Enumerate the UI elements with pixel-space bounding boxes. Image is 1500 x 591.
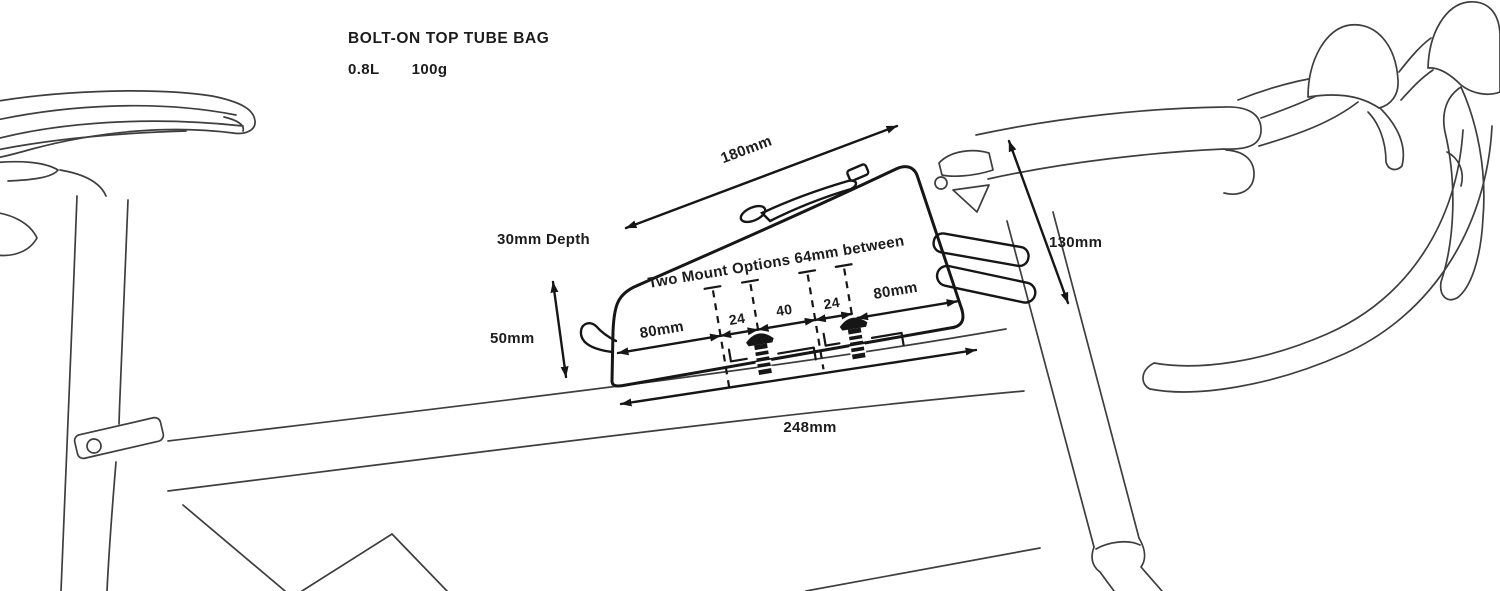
stem <box>976 76 1326 194</box>
handlebar-drop <box>1143 126 1492 392</box>
headset-flap <box>953 185 989 212</box>
zipper-slider-body <box>846 164 869 182</box>
zipper-slider <box>846 164 869 182</box>
saddle <box>0 91 255 159</box>
label-180mm: 180mm <box>719 132 775 167</box>
top-tube <box>168 329 1024 491</box>
brake-hood-rear <box>1308 25 1398 108</box>
brake-hood-front <box>1428 2 1500 94</box>
stem-bolt <box>935 177 947 189</box>
bike-diagram: 180mm 30mm Depth 50mm 130mm 248mm Two Mo… <box>0 0 1500 591</box>
label-24-rear: 24 <box>728 310 747 328</box>
label-248mm: 248mm <box>783 419 836 436</box>
product-diagram-page: BOLT-ON TOP TUBE BAG 0.8L 100g <box>0 0 1500 591</box>
label-24-front: 24 <box>822 294 841 312</box>
brake-lever-rear <box>1368 108 1403 169</box>
headset-cap <box>939 151 993 176</box>
down-tube <box>806 548 1040 591</box>
seat-tube <box>61 196 128 591</box>
frame-junction-lines <box>183 505 447 591</box>
arrow-50mm <box>553 282 566 377</box>
label-50mm: 50mm <box>490 330 535 347</box>
fork-crown <box>1092 538 1162 591</box>
label-40-center: 40 <box>775 301 794 319</box>
dimension-height: 50mm <box>490 282 566 377</box>
zipper-toggle <box>738 203 767 225</box>
strap-loop <box>581 323 616 352</box>
label-130mm: 130mm <box>1049 234 1102 251</box>
saddle-undercarriage <box>0 162 106 256</box>
label-30mm-depth: 30mm Depth <box>497 231 590 248</box>
